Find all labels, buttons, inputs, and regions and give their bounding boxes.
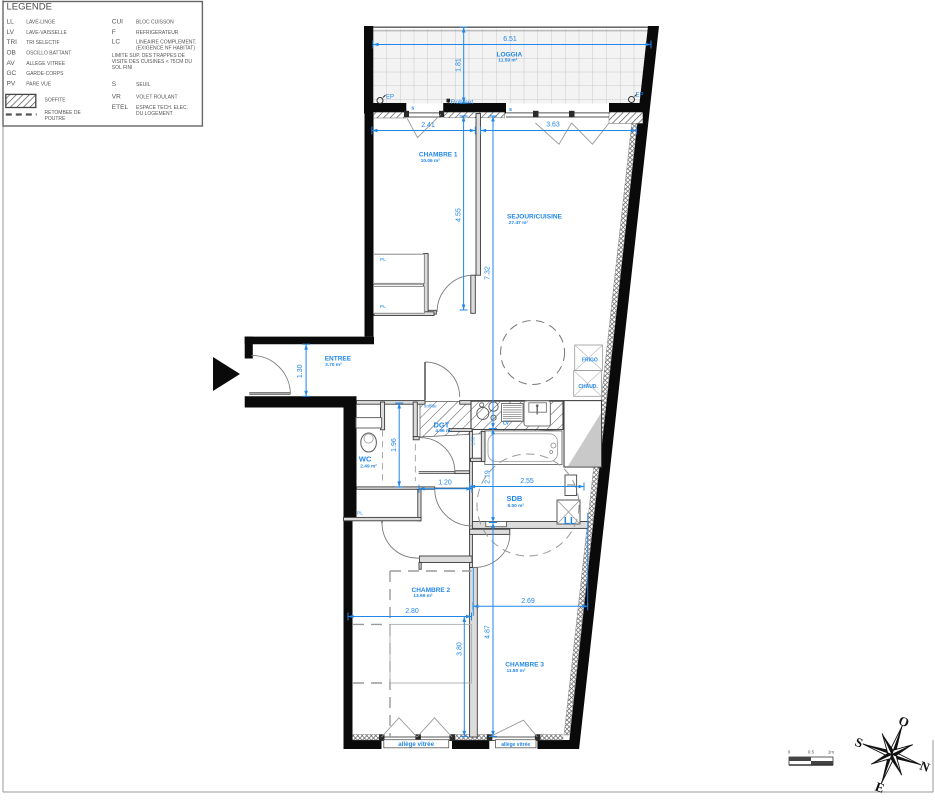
svg-text:VOLET ROULANT: VOLET ROULANT [136, 95, 178, 101]
svg-text:6.51: 6.51 [503, 36, 517, 43]
svg-text:PV: PV [7, 81, 16, 88]
svg-text:2.19: 2.19 [485, 470, 492, 484]
svg-text:1.83: 1.83 [471, 436, 476, 445]
svg-text:2.41: 2.41 [421, 122, 435, 129]
svg-text:F: F [112, 29, 116, 36]
svg-text:1.96: 1.96 [391, 438, 398, 452]
svg-text:11.59 m²: 11.59 m² [498, 58, 517, 64]
svg-text:1.30: 1.30 [297, 364, 304, 378]
svg-text:CHAMBRE 2: CHAMBRE 2 [412, 587, 451, 594]
svg-text:s: s [411, 105, 414, 111]
svg-text:7.32: 7.32 [485, 266, 492, 280]
svg-text:CUI: CUI [112, 19, 123, 26]
svg-text:allège vitrée: allège vitrée [398, 741, 434, 748]
svg-text:10.06 m²: 10.06 m² [421, 158, 441, 164]
svg-text:SEJOUR/CUISINE: SEJOUR/CUISINE [507, 214, 563, 221]
svg-text:13.69 m²: 13.69 m² [413, 593, 433, 599]
svg-text:PL: PL [357, 511, 363, 517]
svg-text:SEUIL: SEUIL [136, 82, 151, 88]
svg-text:(EXIGENCE NF HABITAT): (EXIGENCE NF HABITAT) [136, 46, 195, 52]
svg-text:GC: GC [7, 70, 17, 77]
svg-text:CHAUD.: CHAUD. [578, 384, 598, 390]
svg-text:PL: PL [380, 304, 386, 310]
svg-text:OB: OB [7, 50, 16, 57]
svg-text:3.80: 3.80 [456, 642, 463, 656]
svg-text:PARE VUE: PARE VUE [26, 82, 52, 88]
svg-text:AV: AV [7, 60, 16, 67]
svg-text:LL: LL [7, 19, 15, 26]
svg-text:LOGGIA: LOGGIA [497, 52, 523, 59]
svg-text:5.00 m²: 5.00 m² [508, 503, 525, 509]
svg-text:ETEL: ETEL [112, 104, 129, 111]
svg-text:TRI: TRI [7, 39, 18, 46]
svg-text:PL: PL [380, 257, 386, 263]
svg-text:WC: WC [359, 455, 372, 464]
svg-text:CHAMBRE 3: CHAMBRE 3 [505, 662, 544, 669]
svg-text:S: S [112, 81, 117, 88]
svg-text:1.81: 1.81 [456, 58, 463, 72]
svg-text:FRIGO: FRIGO [582, 358, 598, 364]
svg-text:soffite: soffite [424, 404, 437, 410]
svg-text:SOFFITE: SOFFITE [45, 98, 67, 104]
svg-text:LAVE-LINGE: LAVE-LINGE [26, 20, 56, 26]
svg-text:3.63: 3.63 [546, 122, 560, 129]
svg-text:ENTREE: ENTREE [325, 356, 352, 363]
svg-text:3.70 m²: 3.70 m² [325, 362, 342, 368]
svg-text:GARDE-CORPS: GARDE-CORPS [26, 71, 64, 77]
svg-text:POUTRE: POUTRE [45, 116, 67, 122]
svg-text:SOL FINI: SOL FINI [112, 65, 133, 71]
svg-text:CHAMBRE 1: CHAMBRE 1 [419, 152, 458, 159]
svg-text:4.87: 4.87 [485, 625, 492, 639]
svg-text:SDB: SDB [507, 494, 523, 503]
svg-text:ALLEGE VITREE: ALLEGE VITREE [26, 61, 66, 67]
svg-text:BLOC CUISSON: BLOC CUISSON [136, 20, 174, 26]
svg-text:DU LOGEMENT: DU LOGEMENT [136, 111, 173, 117]
svg-text:4.55: 4.55 [456, 208, 463, 222]
svg-text:2.55: 2.55 [520, 478, 534, 485]
svg-text:0.5: 0.5 [808, 750, 815, 755]
svg-text:allège vitrée: allège vitrée [501, 742, 530, 748]
svg-text:EP: EP [386, 95, 394, 101]
svg-text:27.47 m²: 27.47 m² [509, 220, 529, 226]
svg-text:OSCILLO BATTANT: OSCILLO BATTANT [26, 51, 71, 57]
svg-text:LAVE-VAISSELLE: LAVE-VAISSELLE [26, 30, 67, 36]
svg-text:LEGENDE: LEGENDE [7, 2, 52, 13]
svg-text:11.80 m²: 11.80 m² [507, 668, 526, 674]
svg-text:VR: VR [112, 94, 121, 101]
svg-text:LV: LV [7, 29, 15, 36]
svg-text:2.49 m²: 2.49 m² [360, 464, 377, 470]
svg-text:2.69: 2.69 [521, 598, 535, 605]
svg-text:LC: LC [112, 39, 121, 46]
svg-text:4.96 m²: 4.96 m² [435, 428, 452, 434]
svg-text:LV: LV [503, 421, 510, 427]
svg-text:1.20: 1.20 [438, 480, 452, 487]
svg-text:EP: EP [635, 93, 643, 99]
svg-text:s: s [509, 107, 512, 113]
svg-text:REFRIGERATEUR: REFRIGERATEUR [136, 30, 179, 36]
svg-text:TRI SELECTIF: TRI SELECTIF [26, 40, 59, 46]
svg-text:1m: 1m [828, 750, 835, 755]
svg-text:2.80: 2.80 [405, 608, 419, 615]
